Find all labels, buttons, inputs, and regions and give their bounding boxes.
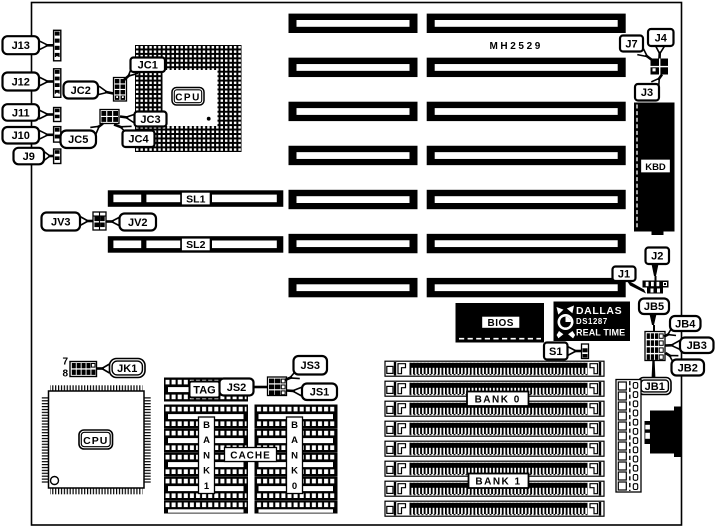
svg-text:JB1: JB1 bbox=[645, 381, 665, 393]
svg-text:J12: J12 bbox=[12, 76, 30, 88]
svg-text:JB4: JB4 bbox=[675, 318, 696, 330]
svg-text:0: 0 bbox=[292, 481, 297, 492]
svg-text:A: A bbox=[291, 435, 298, 446]
svg-text:JC3: JC3 bbox=[140, 114, 160, 126]
svg-text:B: B bbox=[291, 420, 298, 431]
svg-text:BANK 1: BANK 1 bbox=[475, 477, 521, 488]
svg-text:TAG: TAG bbox=[193, 384, 215, 396]
svg-text:CACHE: CACHE bbox=[230, 451, 271, 462]
svg-text:J4: J4 bbox=[655, 32, 668, 44]
svg-text:JV3: JV3 bbox=[51, 216, 71, 228]
svg-text:JB2: JB2 bbox=[678, 362, 698, 374]
svg-text:DS1287: DS1287 bbox=[576, 317, 608, 326]
svg-text:J11: J11 bbox=[12, 107, 30, 119]
svg-text:KBD: KBD bbox=[645, 162, 666, 173]
svg-text:J2: J2 bbox=[651, 251, 663, 263]
svg-text:1: 1 bbox=[204, 481, 210, 492]
svg-text:J9: J9 bbox=[23, 151, 35, 163]
svg-text:CPU: CPU bbox=[83, 435, 108, 447]
svg-text:JV2: JV2 bbox=[128, 217, 148, 229]
svg-text:S1: S1 bbox=[549, 346, 562, 358]
svg-text:J7: J7 bbox=[625, 38, 637, 50]
svg-text:7: 7 bbox=[62, 357, 68, 368]
svg-text:BIOS: BIOS bbox=[487, 318, 513, 329]
svg-text:BANK 0: BANK 0 bbox=[475, 395, 521, 406]
svg-text:A: A bbox=[203, 435, 210, 446]
svg-text:J3: J3 bbox=[641, 87, 653, 99]
svg-text:K: K bbox=[203, 466, 210, 477]
svg-text:JS2: JS2 bbox=[227, 382, 247, 394]
svg-text:MH2529: MH2529 bbox=[490, 41, 543, 52]
svg-text:JK1: JK1 bbox=[117, 363, 137, 375]
svg-text:CPU: CPU bbox=[175, 92, 201, 103]
svg-text:JB3: JB3 bbox=[687, 340, 707, 352]
svg-text:J1: J1 bbox=[618, 269, 630, 281]
svg-text:J13: J13 bbox=[12, 40, 30, 52]
svg-text:K: K bbox=[291, 466, 298, 477]
svg-text:JB5: JB5 bbox=[644, 301, 664, 313]
svg-text:JS3: JS3 bbox=[300, 360, 320, 372]
svg-text:JC1: JC1 bbox=[138, 60, 158, 72]
svg-text:DALLAS: DALLAS bbox=[576, 305, 622, 317]
svg-text:JC4: JC4 bbox=[128, 134, 149, 146]
svg-text:JS1: JS1 bbox=[310, 387, 330, 399]
svg-text:J10: J10 bbox=[12, 130, 30, 142]
svg-text:REAL TIME: REAL TIME bbox=[576, 328, 625, 338]
svg-text:JC5: JC5 bbox=[68, 134, 88, 146]
svg-text:8: 8 bbox=[62, 369, 68, 380]
svg-text:SL2: SL2 bbox=[186, 239, 205, 251]
svg-text:N: N bbox=[291, 450, 298, 461]
svg-text:N: N bbox=[203, 450, 210, 461]
svg-text:SL1: SL1 bbox=[186, 193, 205, 205]
svg-text:JC2: JC2 bbox=[71, 85, 91, 97]
svg-text:B: B bbox=[203, 420, 210, 431]
